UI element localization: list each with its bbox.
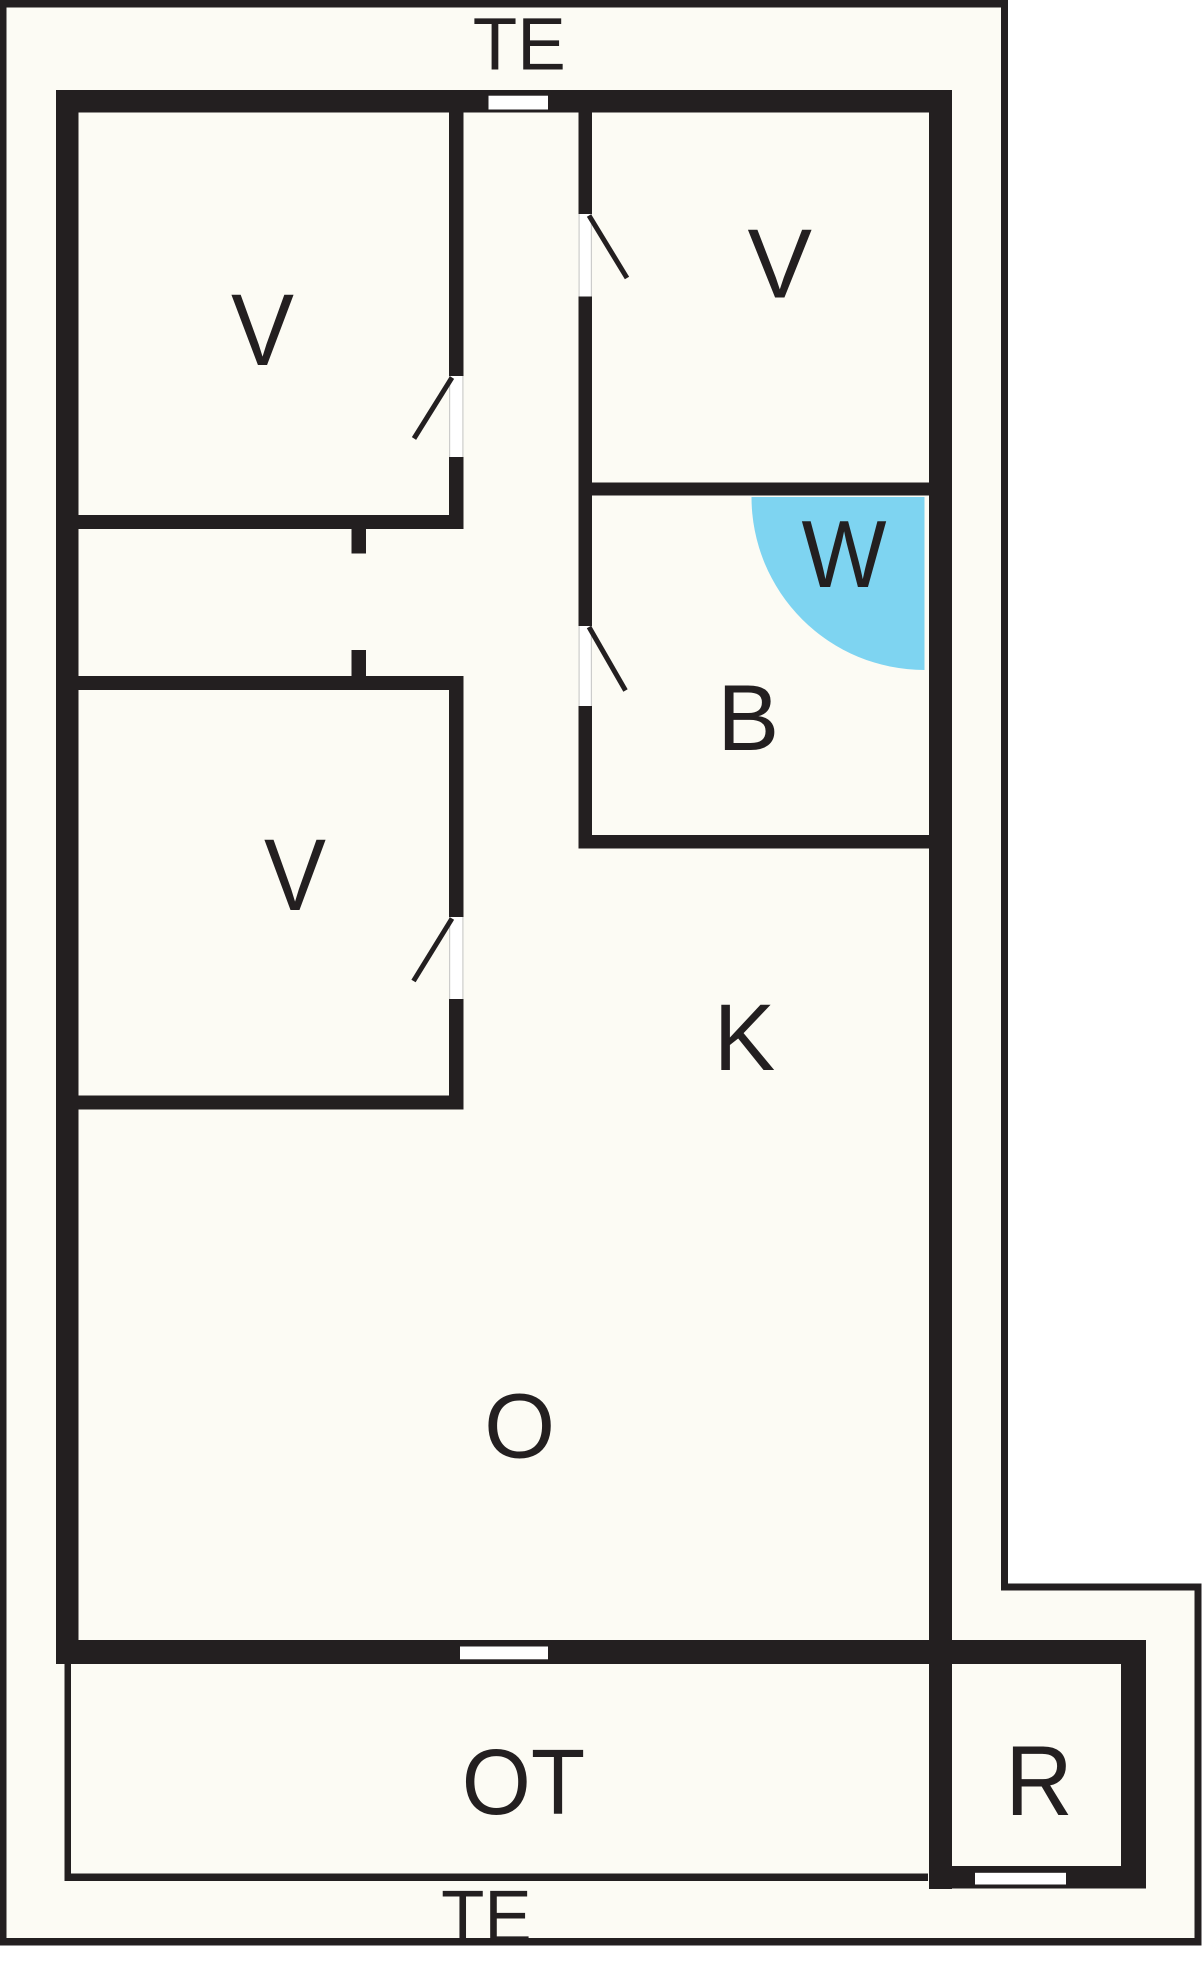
- svg-text:W: W: [802, 501, 887, 608]
- svg-text:B: B: [717, 665, 779, 770]
- svg-text:R: R: [1005, 1725, 1073, 1836]
- svg-text:V: V: [748, 209, 813, 319]
- svg-text:TE: TE: [441, 1875, 532, 1958]
- svg-text:O: O: [484, 1376, 555, 1478]
- svg-text:K: K: [714, 985, 776, 1091]
- svg-text:TE: TE: [473, 3, 566, 86]
- svg-text:OT: OT: [462, 1730, 586, 1834]
- svg-text:V: V: [231, 273, 294, 387]
- svg-text:V: V: [264, 818, 326, 932]
